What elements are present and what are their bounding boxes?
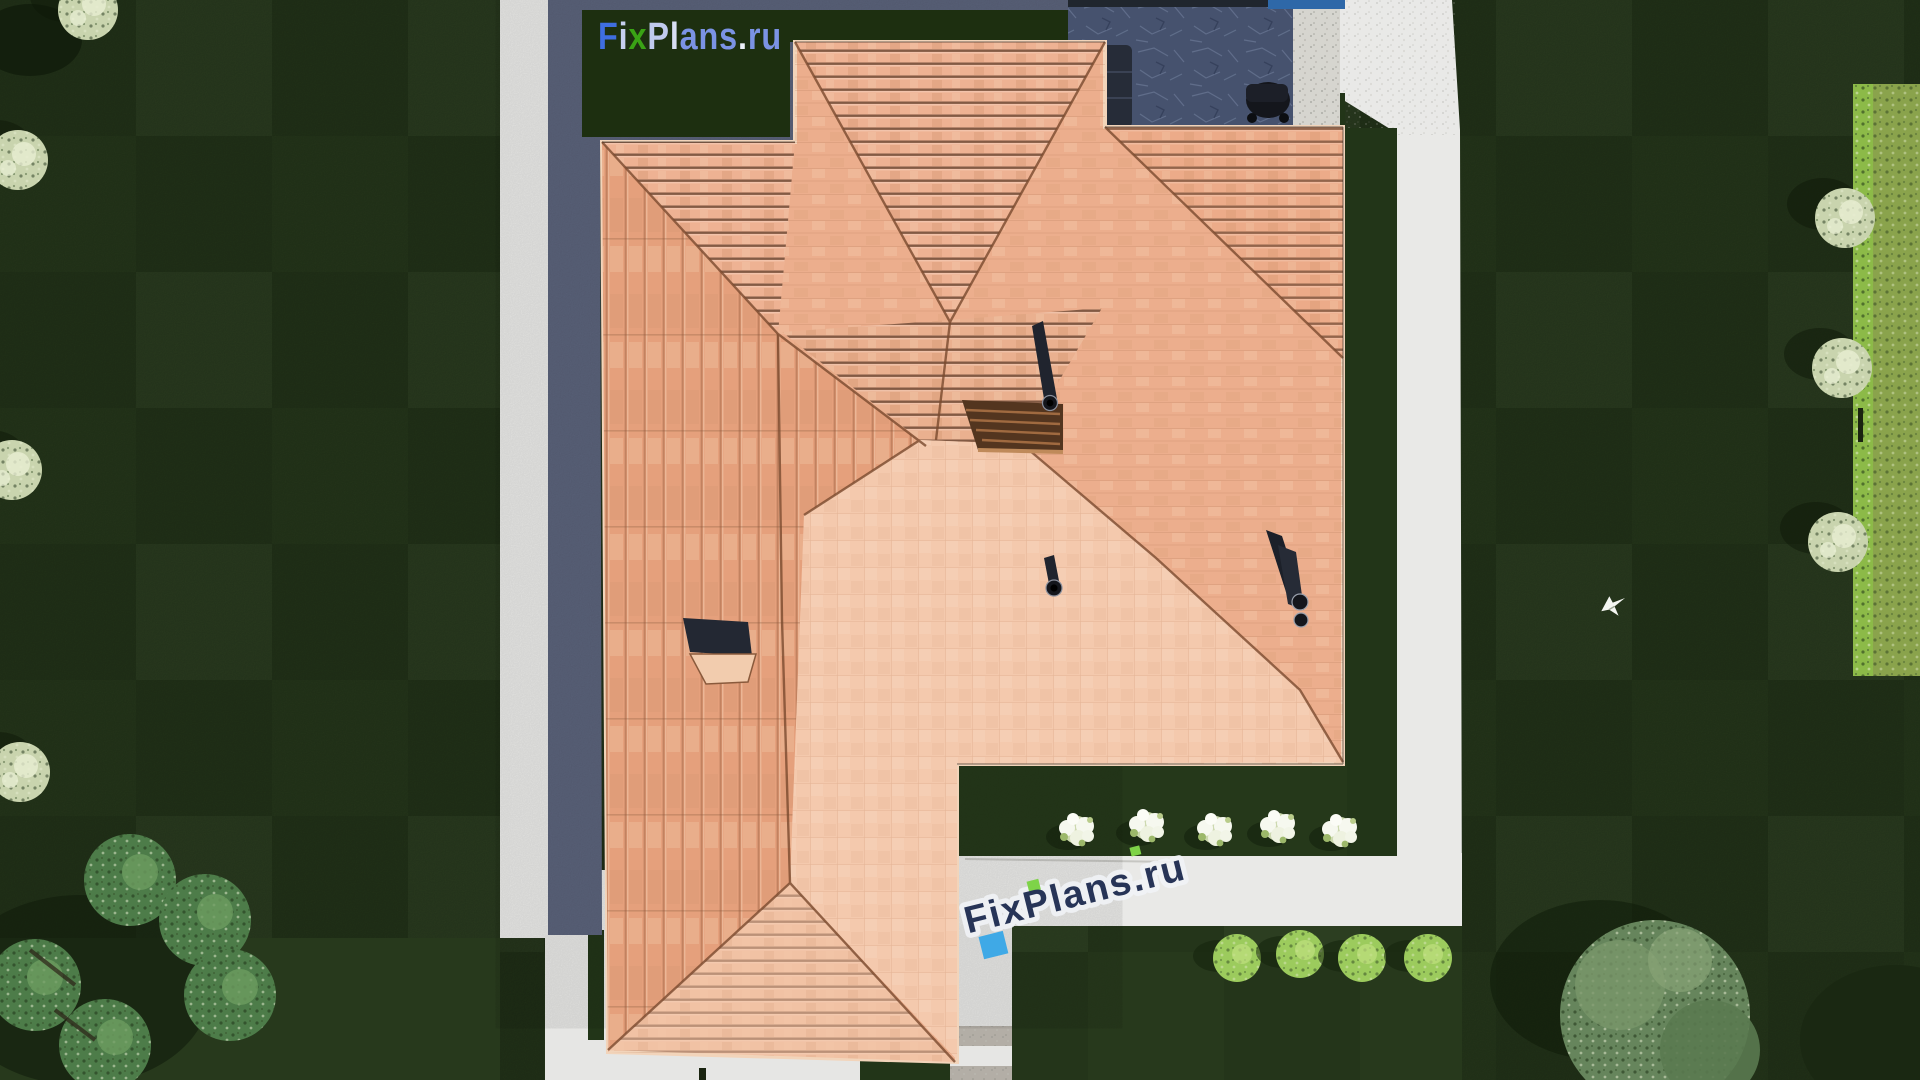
scene-svg: FixPlans.ru [0, 0, 1920, 1080]
pool-edge [1268, 0, 1345, 9]
aerial-render: FixPlans.ru [0, 0, 1920, 1080]
brand-logo-text: FixPlans.ru [598, 16, 782, 58]
grass-sliver [588, 930, 604, 1040]
fence-post [1858, 408, 1863, 442]
bbq-grill [1246, 82, 1290, 123]
patio [1068, 0, 1345, 128]
plant-stem [699, 1068, 706, 1080]
patio-edge [1068, 0, 1268, 7]
grass-strip-right [1345, 128, 1397, 856]
